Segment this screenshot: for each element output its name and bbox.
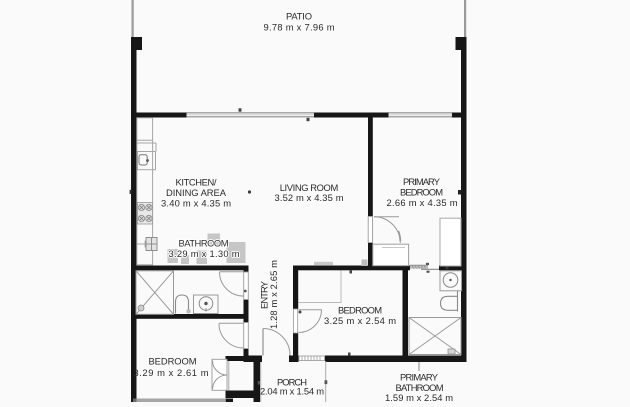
svg-text:PRIMARY: PRIMARY [400, 372, 439, 383]
svg-text:BATHROOM: BATHROOM [179, 238, 229, 249]
svg-text:1.28 m x 2.65 m: 1.28 m x 2.65 m [268, 260, 279, 329]
svg-text:3.29 m x 1.30 m: 3.29 m x 1.30 m [169, 248, 240, 259]
svg-text:9.78 m x 7.96 m: 9.78 m x 7.96 m [264, 22, 335, 33]
svg-text:3.52 m x 4.35 m: 3.52 m x 4.35 m [275, 192, 344, 203]
svg-text:BEDROOM: BEDROOM [149, 356, 197, 367]
svg-text:DINING AREA: DINING AREA [166, 187, 227, 198]
svg-text:3.29 m x 2.61 m: 3.29 m x 2.61 m [134, 367, 209, 378]
svg-text:BEDROOM: BEDROOM [338, 305, 382, 316]
svg-text:KITCHEN/: KITCHEN/ [176, 177, 217, 188]
svg-text:3.40 m x 4.35 m: 3.40 m x 4.35 m [161, 198, 231, 209]
svg-text:2.04 m x 1.54 m: 2.04 m x 1.54 m [260, 386, 324, 397]
svg-text:BEDROOM: BEDROOM [400, 187, 443, 198]
svg-text:2.66 m x 4.35 m: 2.66 m x 4.35 m [387, 197, 458, 208]
svg-text:1.59 m x 2.54 m: 1.59 m x 2.54 m [385, 392, 453, 402]
svg-text:PATIO: PATIO [286, 11, 312, 22]
svg-text:3.25 m x 2.54 m: 3.25 m x 2.54 m [324, 315, 396, 326]
svg-text:PRIMARY: PRIMARY [403, 176, 441, 187]
